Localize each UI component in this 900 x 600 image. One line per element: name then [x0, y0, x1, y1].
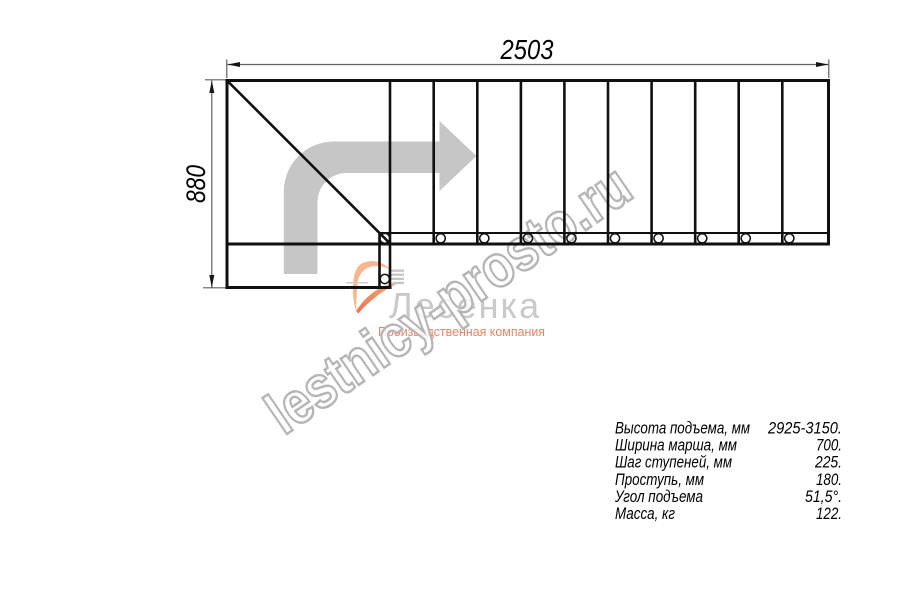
svg-text:2503: 2503 — [500, 34, 554, 65]
svg-text:Масса, кг: Масса, кг — [615, 504, 675, 523]
svg-text:880: 880 — [181, 165, 211, 203]
svg-text:122.: 122. — [816, 504, 842, 523]
